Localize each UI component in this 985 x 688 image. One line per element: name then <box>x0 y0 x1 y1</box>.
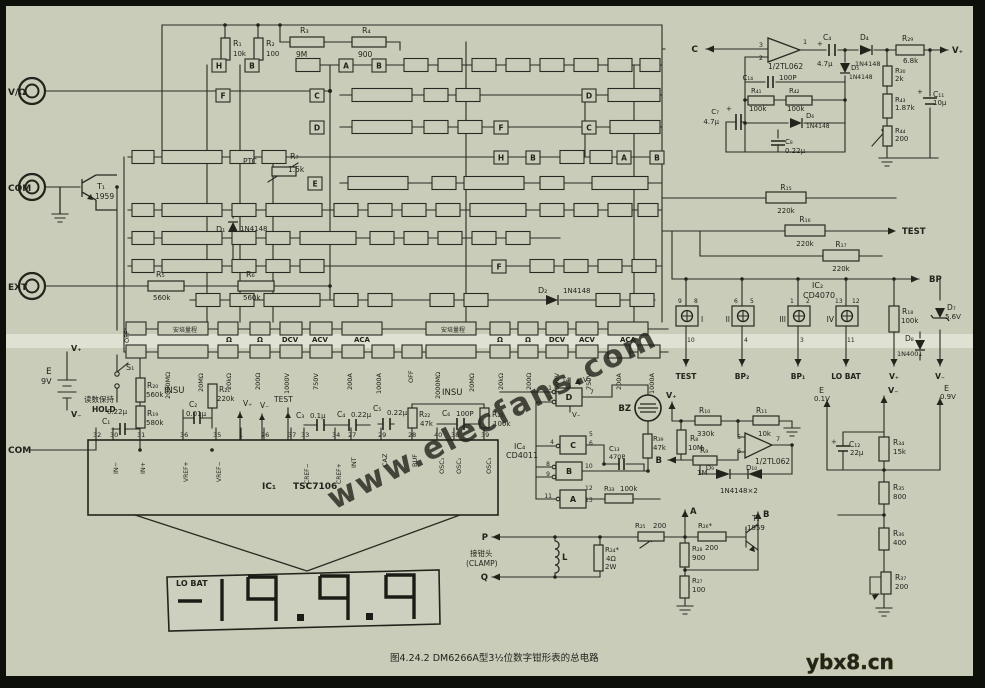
schematic-label: B <box>654 154 660 163</box>
schematic-label: B <box>566 467 572 476</box>
schematic-label: 330k <box>697 430 715 438</box>
schematic-label: R₉ <box>700 446 708 455</box>
schematic-label: 1 <box>803 38 807 46</box>
schematic-label: Ω <box>226 336 232 344</box>
schematic-label: + <box>817 40 823 48</box>
schematic-label: 100k <box>787 105 805 113</box>
schematic-label: R₆ <box>246 270 255 279</box>
schematic-label: 47k <box>653 444 667 452</box>
labels-layer: V/ΩCOMEXTT₁1959R₅560kR₆560kR₁10kR₂100R₃9… <box>8 26 963 594</box>
schematic-label: 200Ω <box>254 373 262 390</box>
schematic-label: 1 <box>239 431 243 439</box>
schematic-label: 2 <box>759 54 763 62</box>
schematic-label: 13 <box>585 497 593 504</box>
schematic-label: DCV <box>549 336 566 344</box>
schematic-label: OSC₃ <box>485 457 493 474</box>
schematic-label: R₁₀ <box>699 406 710 415</box>
schematic-label: IC₂ <box>812 281 823 290</box>
schematic-label: R₃₆ <box>893 529 904 538</box>
schematic-label: R₃₅ <box>893 483 904 492</box>
schematic-label: R₄ <box>362 26 371 35</box>
schematic-label: 220k <box>796 240 814 248</box>
schematic-label: B <box>656 456 662 466</box>
schematic-label: 13 <box>835 298 843 305</box>
schematic-label: D₉ <box>706 464 714 472</box>
schematic-label: F <box>496 263 501 272</box>
schematic-label: 1 <box>790 298 794 305</box>
schematic-label: 9 <box>678 298 682 305</box>
schematic-label: 100k <box>901 317 919 325</box>
schematic-label: 10μ <box>933 99 947 107</box>
schematic-label: 5 <box>737 433 741 441</box>
schematic-label: V₋ <box>260 401 269 410</box>
schematic-label: Ω <box>497 336 503 344</box>
schematic-label: P <box>482 533 488 543</box>
schematic-label: R₄₂ <box>789 87 800 95</box>
schematic-label: B <box>249 62 255 71</box>
schematic-label: 200A <box>615 373 623 390</box>
schematic-label: C₃ <box>296 411 304 420</box>
schematic-label: 47k <box>420 420 434 428</box>
schematic-label: R₁₇ <box>835 240 846 249</box>
schematic-label: 200 <box>705 544 718 552</box>
schematic-label: 4 <box>550 439 554 446</box>
schematic-label: (CLAMP) <box>466 559 498 568</box>
schematic-label: 0.1μ <box>310 412 326 420</box>
schematic-label: + <box>831 438 837 446</box>
schematic-label: 0.22μ <box>387 409 408 417</box>
schematic-label: R₃₀ <box>895 67 906 75</box>
schematic-label: + <box>917 88 923 96</box>
schematic-label: 470P <box>609 453 625 461</box>
schematic-label: TEST <box>676 372 698 381</box>
schematic-label: S₁ <box>126 363 134 372</box>
schematic-label: 1959 <box>747 524 765 532</box>
schematic-label: 读数保持 <box>84 394 114 404</box>
schematic-label: V₋ <box>572 411 581 419</box>
schematic-label: 5.6V <box>945 313 961 321</box>
schematic-label: E <box>944 384 949 393</box>
schematic-label: H <box>216 62 222 71</box>
schematic-label: 6 <box>734 298 738 305</box>
schematic-label: 10k <box>758 430 772 438</box>
schematic-label: B <box>763 510 769 520</box>
schematic-label: 0.22μ <box>107 408 128 416</box>
schematic-label: 1/2TL062 <box>755 457 790 466</box>
schematic-label: INSU <box>442 388 462 398</box>
schematic-label: R₂₆* <box>698 522 712 530</box>
schematic-label: 1.87k <box>895 104 916 112</box>
schematic-label: E <box>819 386 824 395</box>
schematic-label: 11 <box>847 337 855 344</box>
schematic-label: 9 <box>546 471 550 478</box>
schematic-label: 100 <box>266 50 279 58</box>
schematic-label: 0.01μ <box>186 410 207 418</box>
schematic-label: D <box>586 92 592 101</box>
schematic-label: D₁₀ <box>746 464 757 472</box>
schematic-label: 100k <box>620 485 638 493</box>
schematic-label: 2000MΩ <box>164 372 172 399</box>
schematic-label: D <box>314 124 320 133</box>
schematic-label: C <box>570 441 576 450</box>
schematic-label: D₁ <box>216 225 225 234</box>
schematic-label: 2 <box>806 298 810 305</box>
schematic-label: 220k <box>217 395 235 403</box>
schematic-label: R₄₄ <box>895 127 906 135</box>
schematic-label: 5 <box>589 431 593 438</box>
schematic-label: A <box>690 507 697 517</box>
schematic-label: D₆ <box>806 112 814 120</box>
wiring-comparator <box>668 402 800 550</box>
schematic-label: 800 <box>893 493 906 501</box>
schematic-label: CREF− <box>304 463 311 484</box>
xor-gate <box>676 306 698 326</box>
schematic-label: 34 <box>332 431 340 439</box>
schematic-label: 220k <box>832 265 850 273</box>
schematic-label: 9M <box>296 50 307 59</box>
schematic-label: 1000A <box>648 372 656 394</box>
schematic-label: 0.1V <box>814 395 830 403</box>
schematic-label: 4Ω <box>606 555 616 563</box>
schematic-label: V/Ω <box>8 88 26 98</box>
schematic-label: C₁₄ <box>743 74 754 82</box>
schematic-label: TEST <box>273 395 293 404</box>
schematic-label: 4.7μ <box>703 118 719 126</box>
scanned-schematic-page: LO BAT V/ΩCOMEXTT₁1959R₅560kR₆560kR₁10kR… <box>0 0 985 688</box>
schematic-label: 1.5k <box>288 165 305 174</box>
schematic-label: VREF− <box>216 461 223 482</box>
schematic-label: B <box>530 154 536 163</box>
schematic-label: Ω <box>257 336 263 344</box>
schematic-label: + <box>726 105 732 113</box>
schematic-label: T₂ <box>751 514 760 523</box>
schematic-label: A <box>343 62 349 71</box>
schematic-label: R₁ <box>233 39 242 48</box>
schematic-label: DCV <box>282 336 299 344</box>
schematic-label: 200A <box>346 373 354 390</box>
schematic-label: D₇ <box>947 303 956 312</box>
schematic-label: Ω <box>525 336 531 344</box>
schematic-label: 200 <box>895 135 908 143</box>
figure-caption: 图4.24.2 DM6266A型3½位数字钳形表的总电路 <box>390 652 599 664</box>
schematic-label: ACV <box>312 336 329 344</box>
schematic-label: 1N4148 <box>806 123 830 130</box>
schematic-label: 11 <box>544 493 552 500</box>
schematic-label: R₇ <box>290 152 299 161</box>
xor-gate <box>788 306 810 326</box>
schematic-label: V₊ <box>889 372 899 381</box>
schematic-label: 37 <box>288 431 296 439</box>
schematic-label: 安培量程 <box>441 326 465 334</box>
schematic-label: 1000V <box>283 372 291 394</box>
schematic-label: 3 <box>800 337 804 344</box>
schematic-label: 10k <box>233 50 247 58</box>
schematic-label: 580k <box>146 419 164 427</box>
schematic-label: 31 <box>137 431 145 439</box>
schematic-label: R₅ <box>156 270 165 279</box>
schematic-label: F <box>498 124 503 133</box>
schematic-label: C₇ <box>711 108 719 116</box>
schematic-label: 0.9V <box>940 393 956 401</box>
schematic-label: 7 <box>590 389 594 396</box>
schematic-label: 12 <box>585 485 593 492</box>
schematic-label: R₃₇ <box>895 573 906 582</box>
schematic-label: 5 <box>750 298 754 305</box>
schematic-label: R₂₀ <box>147 381 158 390</box>
schematic-label: D₈ <box>905 334 914 343</box>
schematic-label: R₃ <box>300 26 309 35</box>
schematic-label: 2k <box>895 75 904 83</box>
schematic-label: ACV <box>579 336 596 344</box>
schematic-label: 0.22μ <box>351 411 372 419</box>
schematic-label: R₃₃ <box>604 485 615 493</box>
schematic-label: R₂₇ <box>692 577 703 585</box>
schematic-label: CD4011 <box>506 451 538 460</box>
schematic-label: III <box>779 315 786 324</box>
schematic-label: I <box>701 315 703 324</box>
schematic-label: 560k <box>243 294 261 302</box>
schematic-label: 1N4148 <box>563 287 591 295</box>
schematic-label: E <box>46 367 52 377</box>
schematic-label: H <box>498 154 504 163</box>
schematic-label: BP₁ <box>791 372 806 381</box>
schematic-label: 900 <box>692 554 705 562</box>
schematic-label: OFF <box>123 330 131 343</box>
schematic-label: 36 <box>180 431 188 439</box>
schematic-label: 200 <box>653 522 666 530</box>
schematic-label: 6.8k <box>903 57 919 65</box>
schematic-label: IC₁ <box>262 482 276 492</box>
schematic-label: LO BAT <box>831 372 861 381</box>
schematic-label: C₅ <box>373 404 381 413</box>
schematic-label: BZ <box>618 404 631 414</box>
schematic-label: COM <box>8 184 31 194</box>
schematic-label: TEST <box>902 227 926 237</box>
schematic-label: 100 <box>692 586 705 594</box>
schematic-label: 1/2TL062 <box>768 62 803 71</box>
schematic-label: ACA <box>354 336 371 344</box>
schematic-label: T₁ <box>96 182 105 191</box>
schematic-label: V₋ <box>935 372 945 381</box>
schematic-label: BP₂ <box>735 372 750 381</box>
schematic-label: 7 <box>776 435 780 443</box>
schematic-label: R₄₃ <box>895 96 906 104</box>
schematic-label: C₁ <box>102 417 110 426</box>
schematic-label: 2000MΩ <box>434 372 442 399</box>
schematic-label: C <box>586 124 592 133</box>
schematic-label: 1959 <box>95 192 114 201</box>
schematic-label: 400 <box>893 539 906 547</box>
schematic-label: 9V <box>41 377 52 386</box>
schematic-label: 15k <box>893 448 907 456</box>
schematic-label: 8 <box>694 298 698 305</box>
schematic-label: R₁₉ <box>147 409 158 418</box>
schematic-label: C₁₃ <box>609 445 620 453</box>
schematic-label: 1000A <box>375 372 383 394</box>
schematic-label: VREF+ <box>183 461 190 482</box>
schematic-label: V₊ <box>243 399 252 408</box>
schematic-label: R₃₄ <box>893 438 904 447</box>
schematic-label: IV <box>827 315 835 324</box>
schematic-label: 3 <box>759 41 763 49</box>
schematic-label: C <box>314 92 320 101</box>
schematic-label: R₁₆ <box>799 215 810 224</box>
schematic-label: 8 <box>546 461 550 468</box>
schematic-label: IN− <box>112 462 120 474</box>
schematic-label: B <box>376 62 382 71</box>
schematic-label: R₂ <box>266 39 275 48</box>
schematic-label: 22μ <box>850 449 864 457</box>
matrix-row <box>348 177 648 190</box>
schematic-label: C <box>691 45 698 55</box>
schematic-canvas: LO BAT V/ΩCOMEXTT₁1959R₅560kR₆560kR₁10kR… <box>0 0 985 688</box>
schematic-label: EXT <box>8 283 28 293</box>
schematic-label: 6 <box>737 447 741 455</box>
schematic-label: 220k <box>777 207 795 215</box>
schematic-label: 6 <box>589 440 593 447</box>
schematic-label: COM <box>8 446 31 456</box>
schematic-label: 29 <box>378 431 386 439</box>
schematic-label: R₁₁ <box>756 406 767 415</box>
schematic-label: BP <box>929 275 942 285</box>
schematic-label: R₁₈ <box>902 307 913 316</box>
schematic-label: PTC <box>243 157 257 166</box>
schematic-label: 4.7μ <box>817 60 833 68</box>
schematic-label: 1N4001 <box>897 350 923 358</box>
schematic-label: D₅ <box>851 64 859 72</box>
schematic-label: 10 <box>585 463 593 470</box>
schematic-label: 35 <box>213 431 221 439</box>
schematic-label: IC₄ <box>514 442 525 451</box>
schematic-label: Q <box>481 573 488 583</box>
schematic-label: 10 <box>687 337 695 344</box>
schematic-label: C₁₂ <box>849 440 860 449</box>
schematic-label: C₆ <box>442 409 450 418</box>
schematic-label: R₂₉ <box>902 34 913 43</box>
schematic-label: 30 <box>110 431 118 439</box>
schematic-label: V₋ <box>888 386 898 395</box>
lo-bat-indicator: LO BAT <box>176 579 208 588</box>
schematic-label: D₂ <box>538 286 547 295</box>
schematic-label: R₂₄* <box>605 546 619 554</box>
schematic-label: R₂₅ <box>635 522 646 530</box>
schematic-label: 1N4148 <box>240 225 268 233</box>
schematic-label: 32 <box>93 431 101 439</box>
schematic-label: 100P <box>779 74 797 82</box>
schematic-label: 560k <box>146 391 164 399</box>
schematic-label: 20kΩ <box>497 373 505 390</box>
schematic-label: D₄ <box>860 33 869 42</box>
schematic-label: 27 <box>348 431 356 439</box>
schematic-label: R₂₂ <box>419 410 430 419</box>
schematic-label: V₊ <box>666 391 676 400</box>
schematic-label: R₂₈ <box>692 545 703 553</box>
schematic-label: R₁₅ <box>780 183 791 192</box>
schematic-label: 200 <box>895 583 908 591</box>
schematic-label: C₁₁ <box>933 90 944 99</box>
schematic-label: 1N4148×2 <box>720 487 758 495</box>
schematic-label: R₈ <box>690 434 698 443</box>
schematic-label: R₃₉ <box>653 435 664 443</box>
schematic-label: 33 <box>301 431 309 439</box>
schematic-label: 750V <box>312 373 320 390</box>
schematic-label: OFF <box>407 370 415 383</box>
schematic-label: V₋ <box>71 410 81 419</box>
schematic-label: 12 <box>852 298 860 305</box>
schematic-label: A <box>621 154 627 163</box>
schematic-label: 560k <box>153 294 171 302</box>
schematic-label: R₄₁ <box>751 87 762 95</box>
schematic-label: L <box>562 553 568 563</box>
lcd-display: LO BAT <box>135 515 460 631</box>
schematic-label: 2W <box>605 563 616 571</box>
schematic-label: OSC₂ <box>455 457 463 474</box>
schematic-label: 20kΩ <box>225 373 233 390</box>
schematic-label: 4 <box>744 337 748 344</box>
schematic-label: IN+ <box>139 462 147 474</box>
schematic-label: II <box>726 315 730 324</box>
schematic-label: 20MΩ <box>197 373 205 392</box>
xor-gate <box>836 306 858 326</box>
schematic-label: 接钳头 <box>470 548 493 558</box>
schematic-label: A <box>570 495 577 504</box>
schematic-label: V₊ <box>952 46 963 56</box>
site-credit: ybx8.cn <box>806 650 894 674</box>
schematic-label: F <box>220 92 225 101</box>
schematic-label: 1N4148 <box>849 74 873 81</box>
schematic-label: C₈ <box>785 138 793 146</box>
schematic-label: C₄ <box>823 33 831 42</box>
schematic-label: 26 <box>261 431 269 439</box>
buzzer <box>635 395 661 421</box>
schematic-label: 20MΩ <box>468 373 476 392</box>
schematic-label: 900 <box>358 50 373 59</box>
schematic-label: E <box>312 180 317 189</box>
schematic-label: C₂ <box>189 400 197 409</box>
xor-gate <box>732 306 754 326</box>
schematic-label: 100k <box>749 105 767 113</box>
schematic-label: C₄ <box>337 410 345 419</box>
schematic-label: V₊ <box>71 344 81 353</box>
schematic-label: 安培量程 <box>173 326 197 334</box>
schematic-label: 0.22μ <box>785 147 806 155</box>
